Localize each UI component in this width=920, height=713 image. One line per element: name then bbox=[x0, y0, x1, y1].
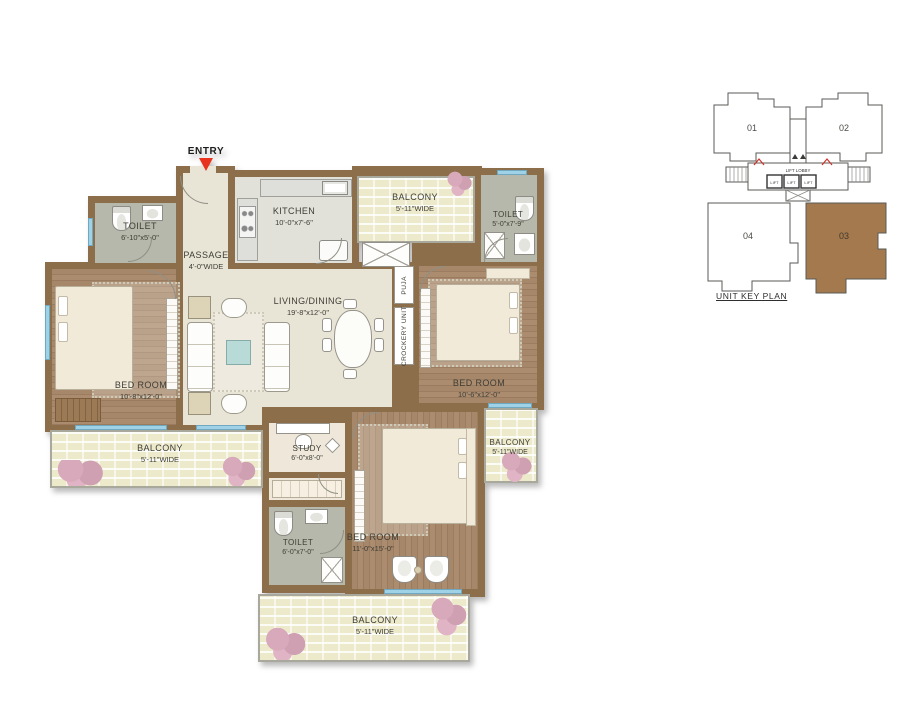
room-label-bed-left: BED ROOM 10'-8"x12'-0" bbox=[85, 380, 197, 401]
room-label-bed-right: BED ROOM 10'-6"x12'-0" bbox=[423, 378, 535, 399]
crockery-label: CROCKERY UNIT bbox=[401, 306, 408, 366]
entry-label: ENTRY bbox=[176, 146, 236, 157]
staircase-left bbox=[726, 167, 748, 182]
wardrobe bbox=[362, 242, 410, 267]
chair bbox=[374, 338, 384, 352]
chair bbox=[322, 318, 332, 332]
lift-label: LIFT bbox=[787, 180, 796, 185]
coffee-table bbox=[226, 340, 251, 365]
staircase-right bbox=[848, 167, 870, 182]
pillow bbox=[58, 322, 68, 342]
shower-tray bbox=[321, 557, 343, 583]
washbasin-icon bbox=[514, 233, 535, 255]
washbasin-icon bbox=[142, 205, 163, 221]
puja-unit: PUJA bbox=[394, 266, 414, 304]
window bbox=[88, 218, 93, 246]
crockery-unit: CROCKERY UNIT bbox=[394, 307, 414, 365]
unit-01-label: 01 bbox=[747, 123, 757, 133]
bench bbox=[486, 268, 530, 279]
window bbox=[196, 425, 246, 430]
bench bbox=[466, 428, 476, 526]
chair bbox=[343, 369, 357, 379]
entry-arrow-icon bbox=[199, 158, 213, 171]
washbasin-icon bbox=[424, 556, 449, 583]
armchair-icon bbox=[221, 298, 247, 318]
armchair-icon bbox=[221, 394, 247, 414]
key-plan-drawing: 01 02 04 03 LIFT LOBBY LIFT LIFT LIFT bbox=[698, 83, 898, 308]
window bbox=[75, 425, 167, 430]
study-desk bbox=[276, 423, 330, 434]
wardrobe bbox=[166, 298, 178, 390]
room-label-balcony-right: BALCONY 5'-11"WIDE bbox=[480, 438, 540, 457]
wardrobe bbox=[420, 288, 431, 368]
unit-04-label: 04 bbox=[743, 231, 753, 241]
plant-icon bbox=[220, 456, 262, 486]
unit-key-plan: 01 02 04 03 LIFT LOBBY LIFT LIFT LIFT bbox=[698, 83, 898, 308]
room-label-living-dining: LIVING/DINING 19'-8"x12'-0" bbox=[250, 296, 366, 317]
room-label-bed-bottom: BED ROOM 11'-0"x15'-0" bbox=[326, 532, 420, 553]
plant-icon bbox=[430, 594, 472, 636]
room-label-balcony-bottom: BALCONY 5'-11"WIDE bbox=[322, 615, 428, 636]
sink-icon bbox=[322, 181, 348, 195]
window bbox=[45, 305, 50, 360]
floor-plan-sheet: PUJA CROCKERY UNIT bbox=[0, 0, 920, 713]
room-label-balcony-left: BALCONY 5'-11"WIDE bbox=[108, 443, 212, 464]
sofa-icon bbox=[264, 322, 290, 392]
pillow bbox=[509, 292, 518, 309]
chair bbox=[322, 338, 332, 352]
lift-label: LIFT bbox=[770, 180, 779, 185]
window bbox=[488, 403, 532, 408]
window bbox=[497, 170, 527, 175]
plant-icon bbox=[52, 460, 114, 486]
wc-icon bbox=[274, 511, 293, 536]
room-label-kitchen: KITCHEN 10'-0"x7'-6" bbox=[246, 206, 342, 227]
chest bbox=[55, 398, 101, 422]
room-label-study: STUDY 6'-0"x8'-0" bbox=[272, 444, 342, 463]
room-label-toilet-left: TOILET 6'-10"x5'-0" bbox=[100, 221, 180, 242]
chair bbox=[374, 318, 384, 332]
plant-icon bbox=[262, 628, 314, 660]
unit-04-outline bbox=[708, 203, 798, 291]
puja-label: PUJA bbox=[401, 276, 408, 295]
bed-icon bbox=[436, 284, 520, 361]
room-label-balcony-top: BALCONY 5'-11"WIDE bbox=[360, 192, 470, 213]
room-label-toilet-top-right: TOILET 5'-0"x7'-9" bbox=[478, 210, 538, 229]
lift-label: LIFT bbox=[804, 180, 813, 185]
room-label-passage: PASSAGE 4'-0"WIDE bbox=[178, 250, 234, 271]
side-table bbox=[188, 296, 211, 319]
unit-02-label: 02 bbox=[839, 123, 849, 133]
pillow bbox=[509, 317, 518, 334]
washbasin-icon bbox=[305, 509, 328, 524]
unit-03-outline bbox=[806, 203, 886, 293]
dining-table bbox=[334, 310, 372, 368]
lift-lobby-label: LIFT LOBBY bbox=[786, 168, 811, 173]
pillow bbox=[58, 296, 68, 316]
unit-03-label: 03 bbox=[839, 231, 849, 241]
key-plan-title: UNIT KEY PLAN bbox=[716, 291, 787, 301]
soap-dish bbox=[414, 566, 422, 574]
room-label-toilet-bottom: TOILET 6'-0"x7'-0" bbox=[262, 538, 334, 557]
